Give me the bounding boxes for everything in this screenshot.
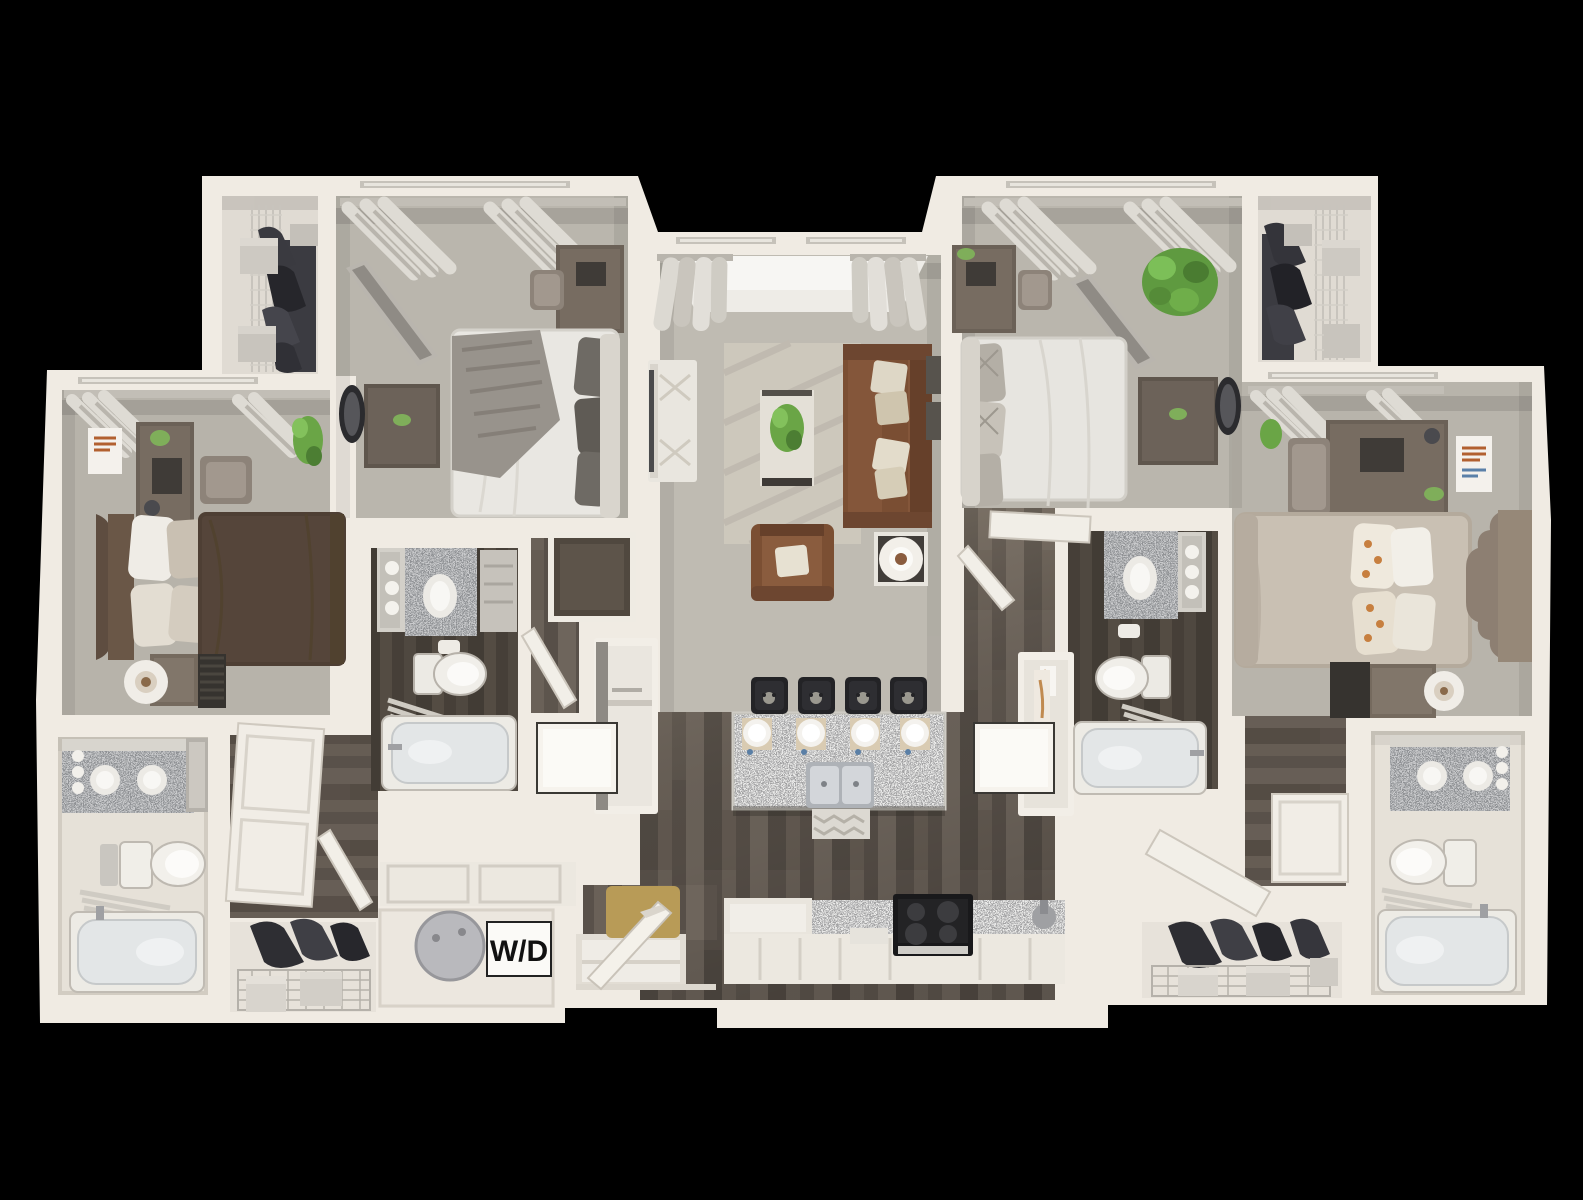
svg-text:W/D: W/D	[490, 935, 548, 968]
